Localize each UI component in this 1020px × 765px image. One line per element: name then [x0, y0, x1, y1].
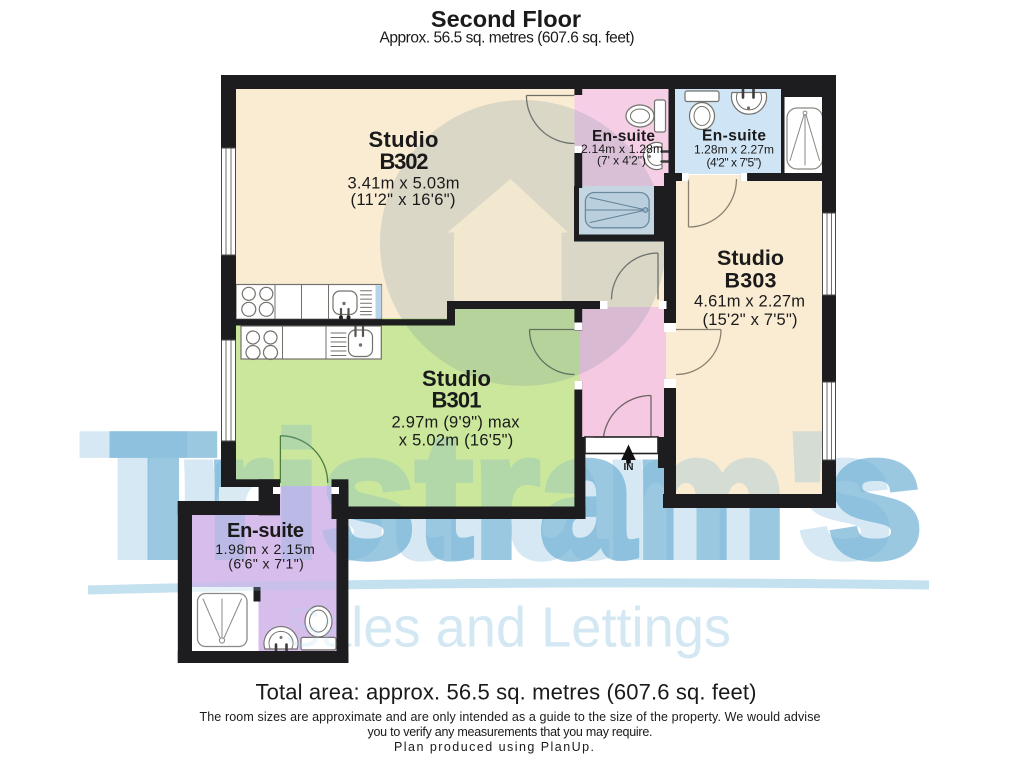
svg-text:(7' x 4'2"): (7' x 4'2"): [597, 154, 646, 168]
svg-text:1.28m x 2.27m: 1.28m x 2.27m: [694, 143, 774, 157]
svg-text:(15'2" x 7'5"): (15'2" x 7'5"): [703, 311, 798, 329]
svg-text:(6'6" x 7'1"): (6'6" x 7'1"): [228, 556, 304, 572]
svg-text:Plan produced using PlanUp.: Plan produced using PlanUp.: [394, 740, 594, 754]
svg-text:Studio: Studio: [717, 246, 784, 270]
svg-text:The room sizes are approximate: The room sizes are approximate and are o…: [200, 710, 821, 724]
svg-text:you to verify any measurements: you to verify any measurements that you …: [368, 725, 653, 739]
svg-text:3.41m x 5.03m: 3.41m x 5.03m: [348, 175, 460, 193]
svg-text:(11'2" x 16'6"): (11'2" x 16'6"): [351, 191, 456, 209]
svg-text:Approx. 56.5 sq. metres (607.6: Approx. 56.5 sq. metres (607.6 sq. feet): [380, 30, 635, 47]
svg-text:4.61m x 2.27m: 4.61m x 2.27m: [694, 293, 805, 311]
svg-text:B303: B303: [725, 269, 777, 293]
svg-text:B301: B301: [432, 388, 482, 413]
svg-text:B302: B302: [380, 149, 429, 174]
svg-text:2.97m (9'9") max: 2.97m (9'9") max: [392, 414, 521, 432]
svg-text:IN: IN: [624, 462, 634, 473]
svg-text:x 5.02m (16'5"): x 5.02m (16'5"): [399, 432, 514, 450]
svg-text:Sales and Lettings: Sales and Lettings: [285, 596, 731, 660]
svg-text:En-suite: En-suite: [227, 520, 304, 542]
svg-text:Total area: approx. 56.5 sq. m: Total area: approx. 56.5 sq. metres (607…: [256, 680, 757, 705]
svg-text:(4'2" x 7'5"): (4'2" x 7'5"): [707, 156, 762, 170]
svg-text:Second Floor: Second Floor: [431, 6, 581, 32]
